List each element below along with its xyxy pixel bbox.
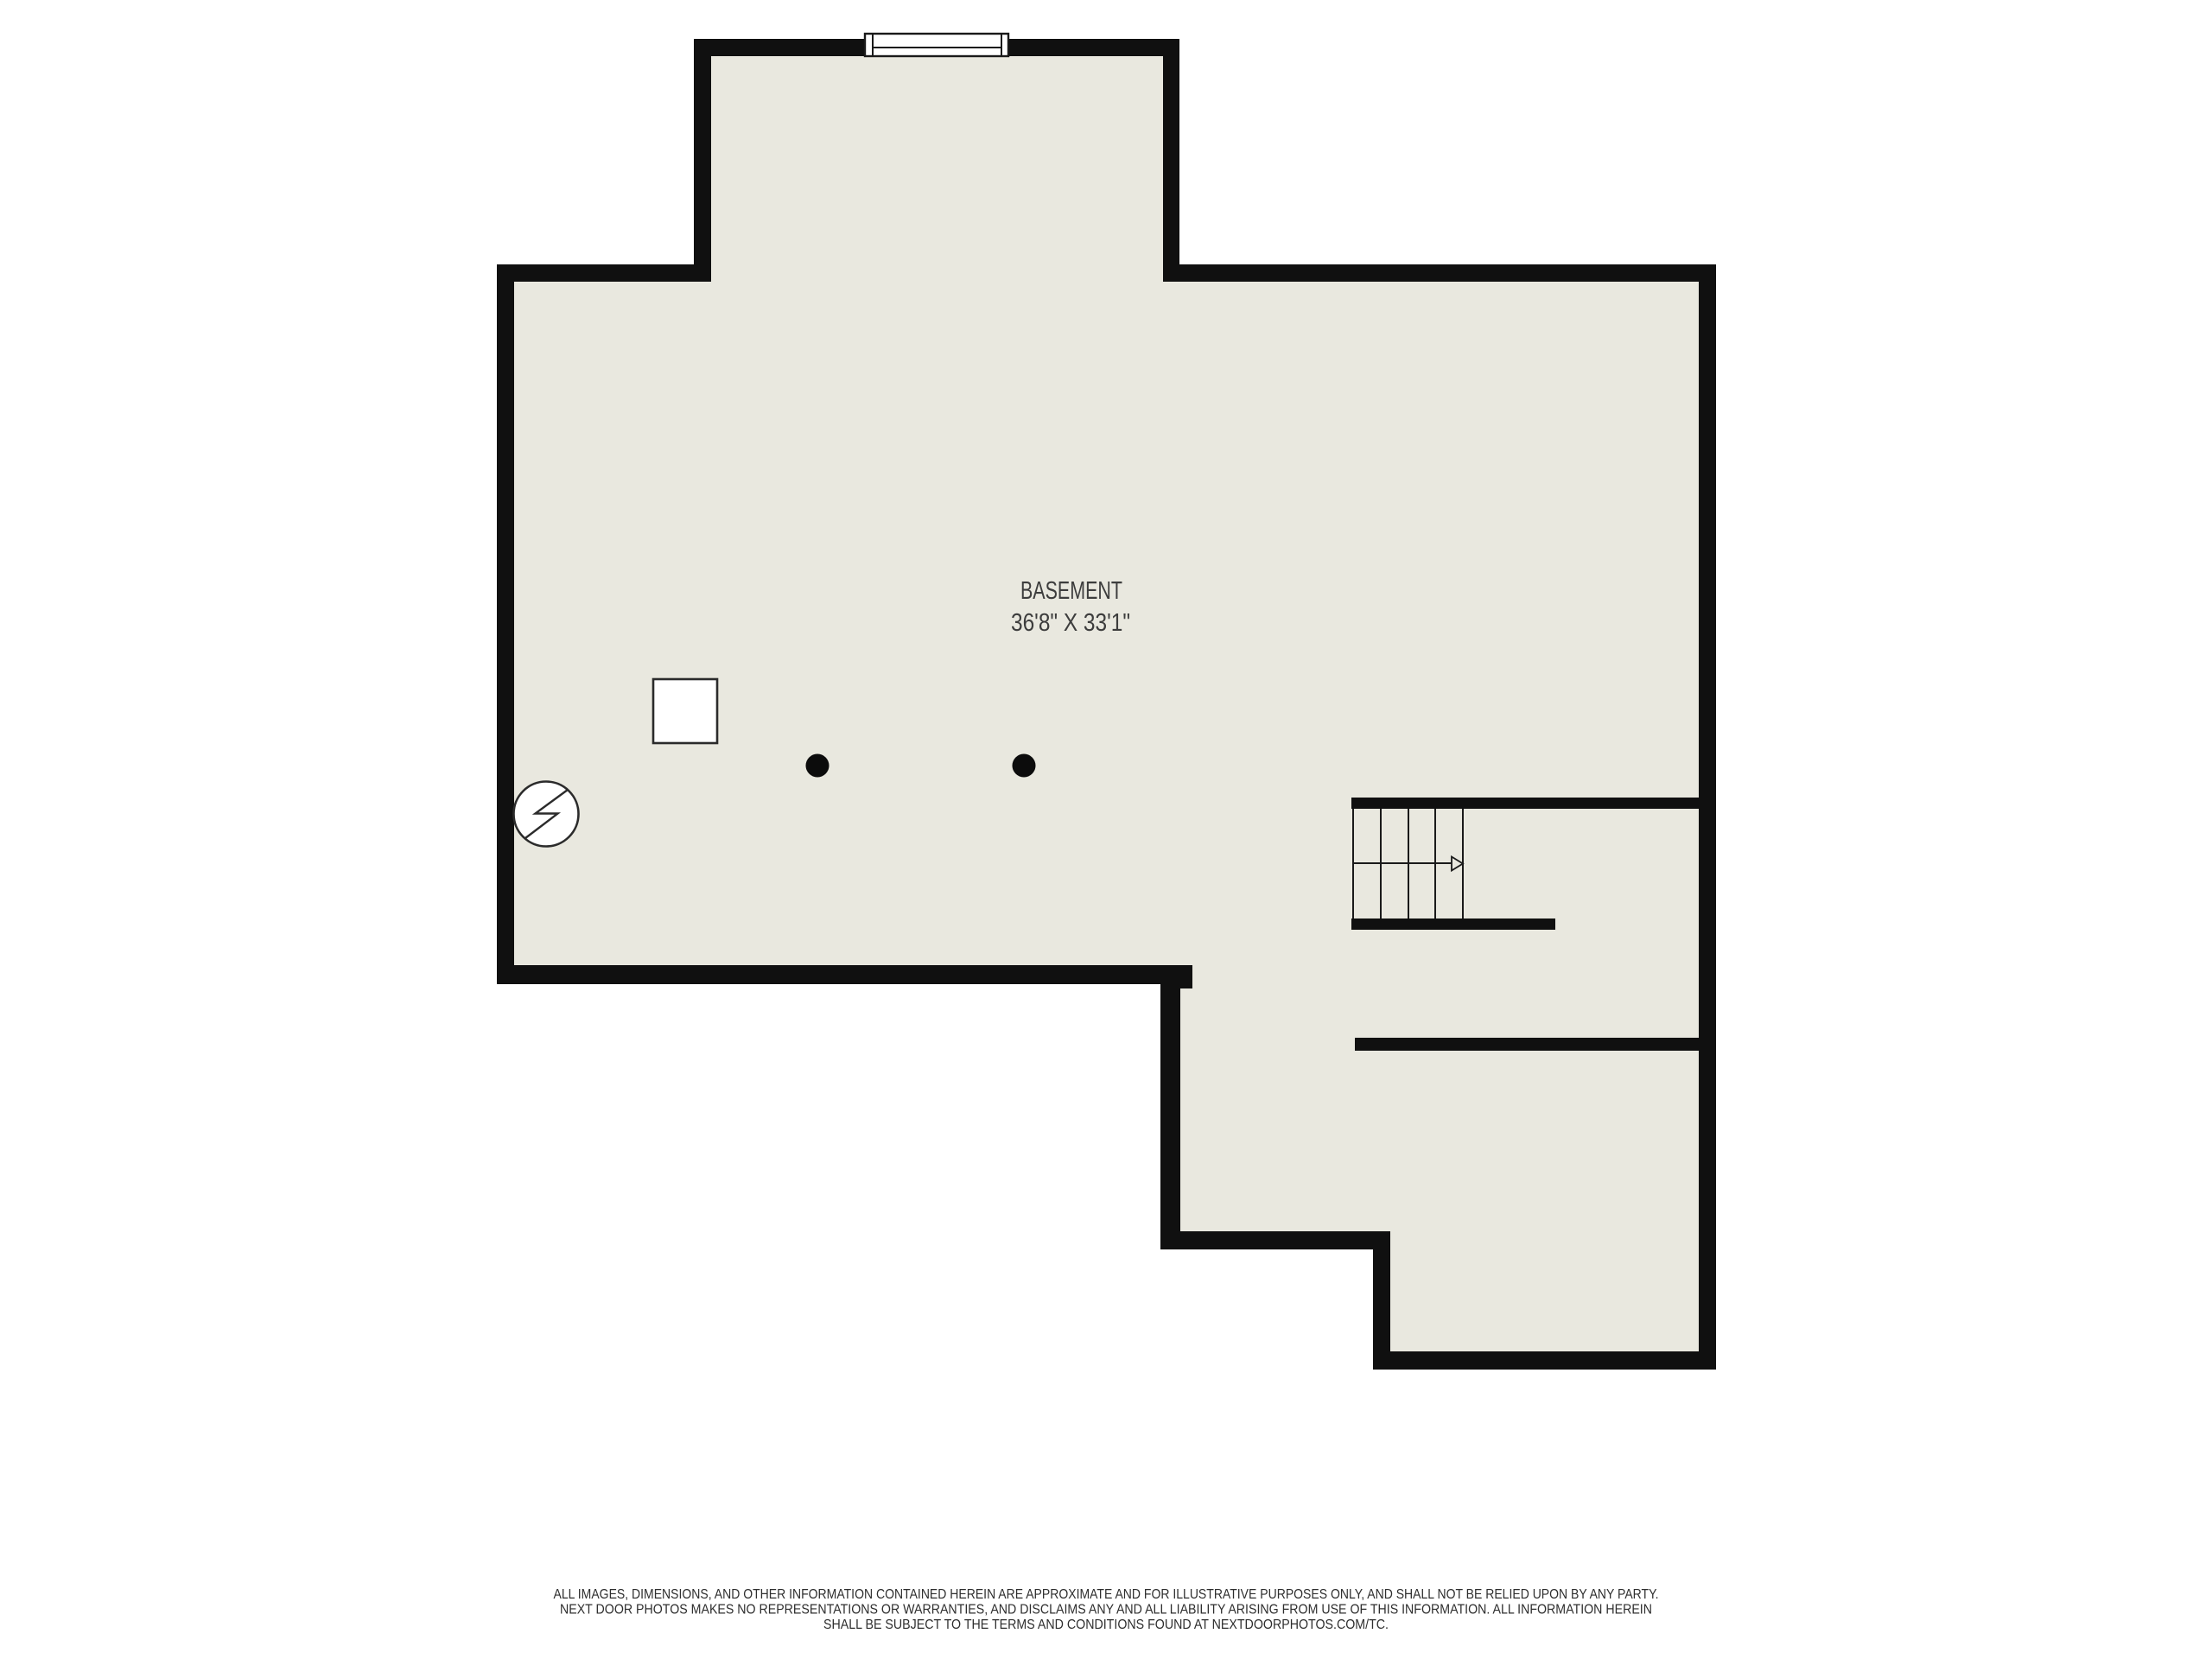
svg-text:36'8" X 33'1": 36'8" X 33'1" [1011,609,1130,637]
svg-text:ALL IMAGES, DIMENSIONS, AND OT: ALL IMAGES, DIMENSIONS, AND OTHER INFORM… [554,1587,1659,1602]
svg-text:SHALL BE SUBJECT TO THE TERMS: SHALL BE SUBJECT TO THE TERMS AND CONDIT… [823,1618,1389,1632]
svg-text:NEXT DOOR PHOTOS MAKES NO REPR: NEXT DOOR PHOTOS MAKES NO REPRESENTATION… [560,1603,1652,1618]
svg-text:BASEMENT: BASEMENT [1020,577,1122,605]
